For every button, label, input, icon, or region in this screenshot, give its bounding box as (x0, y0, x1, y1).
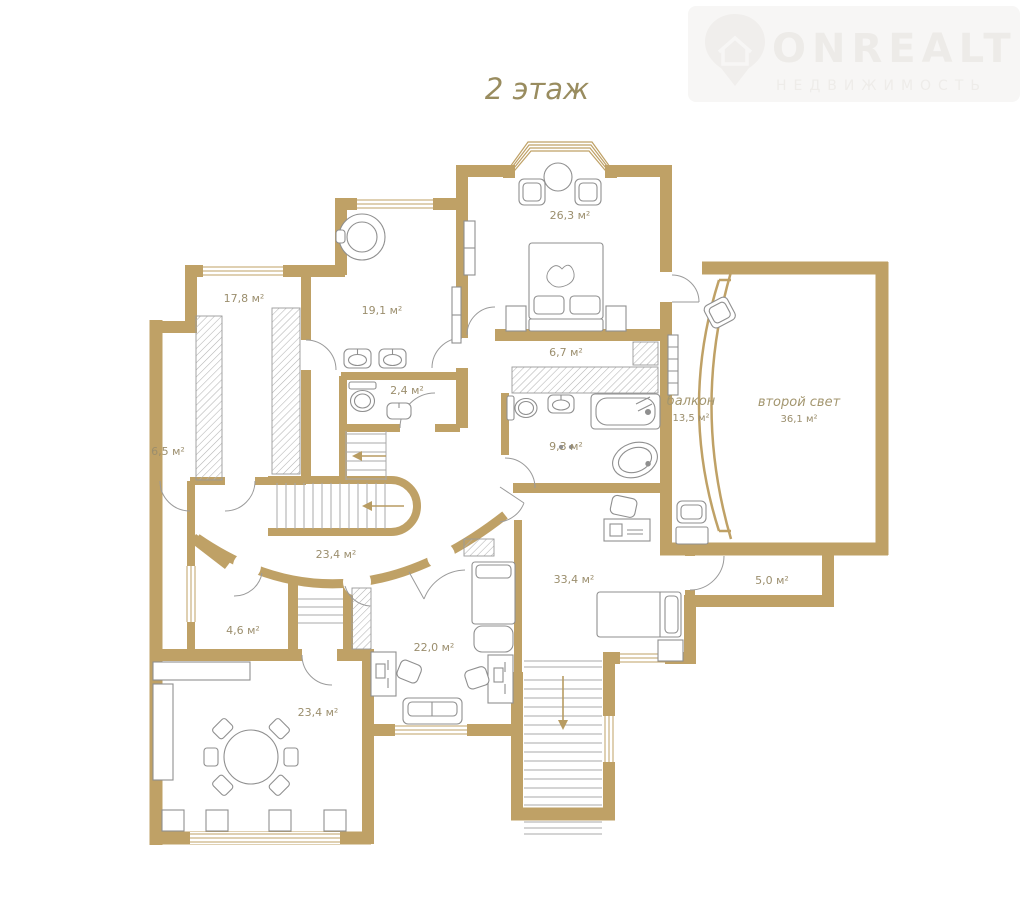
spa-tub-icon (608, 436, 663, 484)
hall-staircase (268, 480, 417, 532)
stool-icon (162, 810, 184, 831)
dresser-icon (464, 221, 475, 275)
sink-icon (379, 349, 406, 368)
stool-icon (206, 810, 228, 831)
sofa-icon (403, 698, 462, 724)
bed-icon (597, 592, 683, 661)
floor-plan-page: ONREALT НЕДВИЖИМОСТЬ 2 этаж (0, 0, 1025, 910)
desk-icon (371, 652, 396, 696)
door-arc (690, 556, 724, 590)
onrealt-logo: ONREALT НЕДВИЖИМОСТЬ (688, 6, 1020, 102)
room-name-label-balcony: балкон (667, 394, 716, 409)
door-arc (160, 481, 190, 511)
room-area-label-9-3: 9,3 м² (549, 440, 583, 453)
armchair-icon (676, 501, 708, 544)
room-area-label-22-0: 22,0 м² (414, 641, 455, 654)
door-arc (672, 275, 699, 302)
radiator-icon (668, 335, 678, 395)
sink-icon (548, 395, 574, 413)
room-name-label-second-light: второй свет (758, 395, 841, 410)
room-area-label-2-4: 2,4 м² (390, 384, 424, 397)
sink-icon (344, 349, 371, 368)
side-table-icon (676, 527, 708, 544)
wardrobe (272, 308, 300, 474)
dining-table-icon (204, 717, 298, 796)
logo-subtitle-text: НЕДВИЖИМОСТЬ (776, 78, 987, 94)
round-table-icon (544, 163, 572, 191)
window (190, 832, 340, 844)
floor-title: 2 этаж (485, 72, 589, 106)
door-arc (306, 340, 336, 370)
room-area-label-hall: 23,4 м² (316, 548, 357, 561)
room-area-label-33-4: 33,4 м² (554, 573, 595, 586)
desk-icon (488, 655, 513, 703)
room-area-label-19-1: 19,1 м² (362, 304, 403, 317)
bedroom-seating (519, 163, 601, 205)
bed-icon (506, 243, 626, 331)
chair-icon (268, 774, 291, 797)
room-area-label-4-6: 4,6 м² (226, 624, 260, 637)
desk-chair-icon (609, 495, 637, 519)
room-area-label-second-light: 36,1 м² (781, 414, 818, 425)
door-arc (467, 307, 495, 335)
stools (162, 810, 346, 831)
toilet-icon (349, 382, 376, 412)
wardrobe (633, 342, 658, 365)
toilet-icon (507, 396, 537, 420)
wardrobe (464, 539, 494, 556)
room-area-label-6-7: 6,7 м² (549, 346, 583, 359)
chair-icon (211, 717, 234, 740)
room-area-label-17-8: 17,8 м² (224, 292, 265, 305)
desk-icon (604, 519, 650, 541)
door-arc (409, 570, 465, 599)
stool-icon (269, 810, 291, 831)
window (203, 265, 283, 277)
room-area-label-balcony: 13,5 м² (673, 413, 710, 424)
door-arc (302, 655, 332, 685)
desk-chair-icon (463, 665, 490, 690)
room-area-label-dining: 23,4 м² (298, 706, 339, 719)
sink-icon (387, 403, 411, 419)
radiator-icon (452, 287, 461, 343)
window (603, 716, 615, 762)
small-stair (298, 599, 343, 623)
window (395, 724, 467, 736)
room-area-label-26-3: 26,3 м² (550, 209, 591, 222)
bed-icon (472, 562, 515, 652)
logo-brand-text: ONREALT (772, 26, 1017, 72)
floor-plan: ONREALT НЕДВИЖИМОСТЬ 2 этаж (0, 0, 1025, 910)
nightstand-icon (506, 306, 526, 331)
window (185, 566, 197, 622)
desk-chair-icon (395, 659, 423, 685)
window (357, 198, 433, 210)
nightstand-icon (606, 306, 626, 331)
chair-icon (204, 748, 218, 766)
wardrobe (512, 367, 658, 393)
wardrobe (352, 588, 371, 649)
room-area-label-6-5: 6,5 м² (151, 445, 185, 458)
chair-icon (284, 748, 298, 766)
stool-icon (324, 810, 346, 831)
room-area-label-5-0: 5,0 м² (755, 574, 789, 587)
chair-icon (211, 774, 234, 797)
bathtub-icon (591, 394, 660, 429)
chair-icon (268, 717, 291, 740)
upper-flight (346, 431, 386, 480)
wardrobe (196, 316, 222, 480)
door-arc (225, 481, 255, 511)
nightstand-icon (658, 640, 683, 661)
